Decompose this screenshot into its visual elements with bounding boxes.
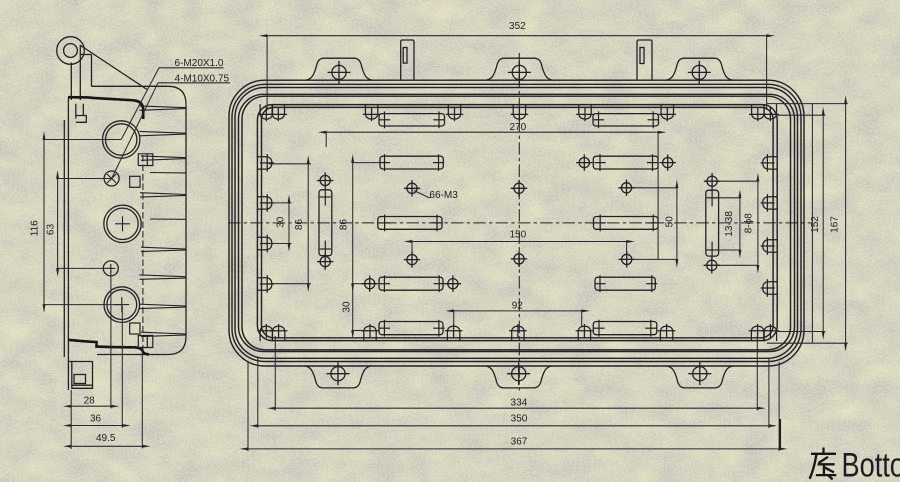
svg-text:270: 270	[509, 122, 526, 133]
svg-text:6-M20X1.0: 6-M20X1.0	[175, 58, 224, 69]
svg-text:30: 30	[276, 216, 287, 228]
svg-text:36: 36	[90, 414, 102, 425]
svg-text:66-M3: 66-M3	[429, 190, 458, 201]
svg-text:350: 350	[511, 413, 528, 424]
svg-text:167: 167	[830, 216, 841, 233]
svg-text:86: 86	[339, 219, 350, 231]
svg-text:30: 30	[342, 301, 353, 313]
svg-text:8-ϕ8: 8-ϕ8	[743, 213, 754, 233]
svg-text:92: 92	[512, 301, 524, 312]
svg-text:150: 150	[509, 230, 526, 241]
svg-text:Bottom: Bottom	[842, 447, 900, 482]
svg-text:49.5: 49.5	[96, 433, 116, 444]
svg-text:28: 28	[84, 395, 96, 406]
svg-text:86: 86	[294, 219, 305, 231]
svg-text:13-38: 13-38	[724, 211, 735, 237]
svg-text:367: 367	[511, 436, 528, 447]
svg-text:116: 116	[30, 220, 41, 236]
svg-text:352: 352	[509, 21, 526, 32]
svg-text:4-M10X0.75: 4-M10X0.75	[175, 73, 230, 84]
svg-text:63: 63	[46, 224, 57, 236]
svg-text:152: 152	[810, 216, 821, 233]
svg-text:334: 334	[511, 398, 528, 409]
svg-text:50: 50	[664, 216, 675, 228]
